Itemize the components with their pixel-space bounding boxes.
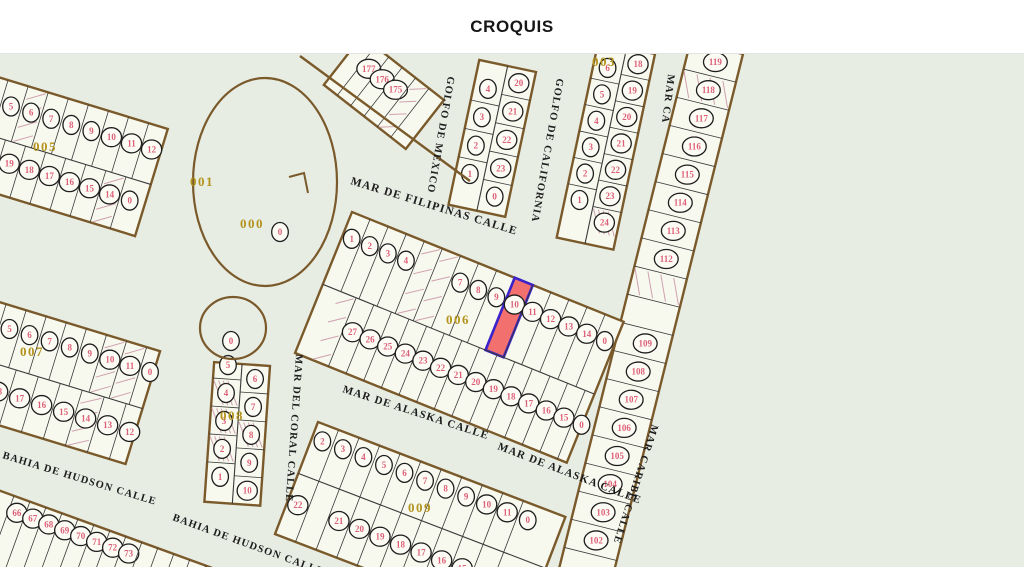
svg-text:21: 21 (508, 107, 518, 117)
lot-number: 73 (119, 544, 139, 563)
lot-number: 8 (437, 479, 454, 498)
lot-number: 18 (19, 160, 39, 179)
svg-text:9: 9 (464, 492, 469, 502)
block-label: 000 (240, 216, 264, 231)
lot-number: 109 (633, 334, 657, 353)
svg-text:9: 9 (89, 126, 94, 136)
lot-number: 103 (591, 503, 615, 522)
svg-text:11: 11 (528, 307, 537, 317)
svg-text:67: 67 (28, 514, 38, 524)
svg-text:15: 15 (559, 413, 569, 423)
lot-number: 5 (3, 97, 20, 116)
svg-text:113: 113 (667, 226, 681, 236)
lot-number: 6 (21, 326, 38, 345)
lot-number: 9 (241, 453, 258, 472)
svg-text:5: 5 (9, 102, 14, 112)
croquis-map: 5678910111220191817161514056789101101918… (0, 54, 1024, 567)
svg-text:108: 108 (631, 367, 645, 377)
svg-text:12: 12 (147, 144, 157, 154)
svg-text:18: 18 (25, 165, 35, 175)
svg-text:8: 8 (249, 430, 254, 440)
svg-text:73: 73 (124, 549, 134, 559)
lot-number: 19 (370, 527, 390, 546)
svg-text:2: 2 (583, 169, 588, 179)
svg-text:24: 24 (600, 218, 610, 228)
svg-text:1: 1 (577, 195, 582, 205)
svg-text:18: 18 (634, 59, 644, 69)
lot-number: 4 (355, 448, 372, 467)
lot-number: 10 (237, 481, 257, 500)
lot-number: 108 (626, 362, 650, 381)
lot-number: 115 (675, 165, 699, 184)
lot-number: 20 (509, 74, 529, 93)
lot-number: 17 (10, 389, 30, 408)
svg-text:0: 0 (229, 336, 234, 346)
svg-text:8: 8 (476, 285, 481, 295)
svg-text:14: 14 (105, 189, 115, 199)
lot-number: 15 (554, 408, 574, 427)
svg-text:107: 107 (624, 395, 638, 405)
block-008: 67891054321 (204, 354, 270, 506)
svg-text:8: 8 (67, 342, 72, 352)
lot-number: 2 (577, 164, 594, 183)
svg-text:18: 18 (396, 540, 406, 550)
svg-text:112: 112 (660, 254, 674, 264)
svg-text:175: 175 (389, 85, 403, 95)
svg-text:0: 0 (579, 420, 584, 430)
lot-number: 21 (329, 511, 349, 530)
svg-text:3: 3 (341, 444, 346, 454)
lot-number: 2 (361, 237, 378, 256)
svg-text:114: 114 (674, 198, 688, 208)
lot-number: 4 (588, 111, 605, 130)
block-label: 007 (20, 344, 44, 359)
lot-number: 23 (491, 159, 511, 178)
lot-number: 7 (245, 397, 262, 416)
svg-text:22: 22 (502, 135, 512, 145)
block-golfo-block: 2021222304321 (448, 60, 536, 217)
lot-number: 12 (120, 422, 140, 441)
svg-text:19: 19 (5, 159, 15, 169)
lot-number: 5 (376, 455, 393, 474)
map-detail-line (289, 173, 308, 193)
lot-number: 17 (411, 543, 431, 562)
lot-number: 6 (247, 369, 264, 388)
svg-text:6: 6 (29, 108, 34, 118)
svg-text:6: 6 (27, 330, 32, 340)
svg-text:20: 20 (514, 78, 524, 88)
svg-text:117: 117 (695, 113, 709, 123)
svg-text:2: 2 (320, 436, 325, 446)
lot-number: 20 (617, 108, 637, 127)
lot-number: 106 (612, 418, 636, 437)
lot-number: 107 (619, 390, 643, 409)
svg-text:3: 3 (386, 248, 391, 258)
svg-text:118: 118 (702, 85, 716, 95)
svg-text:2: 2 (474, 141, 479, 151)
lot-number: 17 (39, 166, 59, 185)
svg-text:17: 17 (45, 171, 55, 181)
lot-number: 1 (571, 190, 588, 209)
svg-text:7: 7 (47, 336, 52, 346)
lot-number: 0 (142, 362, 159, 381)
block-007: 56789101101918171615141312 (0, 298, 167, 466)
svg-text:109: 109 (638, 338, 652, 348)
svg-text:6: 6 (402, 468, 407, 478)
cadastral-map-canvas: 5678910111220191817161514056789101101918… (0, 54, 1024, 567)
lot-number: 4 (218, 383, 235, 402)
block-003: 18192021222324654321 (557, 54, 655, 250)
lot-number: 19 (0, 154, 19, 173)
svg-text:22: 22 (293, 500, 303, 510)
lot-number: 21 (611, 134, 631, 153)
lot-number: 9 (83, 122, 100, 141)
lot-number: 118 (696, 81, 720, 100)
lot-number: 2 (214, 439, 231, 458)
svg-text:23: 23 (605, 191, 615, 201)
lot-number: 22 (497, 130, 517, 149)
roundabout-outline (193, 78, 337, 286)
svg-text:4: 4 (404, 256, 409, 266)
svg-text:19: 19 (628, 86, 638, 96)
svg-text:13: 13 (564, 321, 574, 331)
page-title: CROQUIS (470, 17, 554, 37)
lot-number: 6 (396, 463, 413, 482)
lot-number: 4 (480, 79, 497, 98)
lot-number: 15 (79, 179, 99, 198)
svg-text:66: 66 (12, 508, 22, 518)
svg-text:17: 17 (524, 398, 534, 408)
lot-number: 11 (121, 134, 141, 153)
svg-text:5: 5 (7, 324, 12, 334)
lot-number: 6 (23, 103, 40, 122)
street-label: GOLFO DE CALIFORNIA (529, 77, 565, 223)
lot-number: 1 (212, 467, 229, 486)
svg-text:4: 4 (594, 116, 599, 126)
svg-text:5: 5 (600, 89, 605, 99)
lot-number: 12 (540, 310, 560, 329)
svg-text:10: 10 (105, 355, 115, 365)
svg-text:9: 9 (247, 458, 252, 468)
svg-text:12: 12 (546, 314, 556, 324)
lot-number: 13 (98, 416, 118, 435)
svg-text:15: 15 (85, 183, 95, 193)
svg-text:21: 21 (617, 138, 627, 148)
lot-number: 11 (522, 302, 542, 321)
svg-text:70: 70 (76, 531, 86, 541)
svg-text:26: 26 (366, 334, 376, 344)
lot-number: 7 (417, 471, 434, 490)
svg-text:2: 2 (220, 444, 225, 454)
lot-number: 14 (100, 185, 120, 204)
lot-number: 14 (76, 409, 96, 428)
lot-number: 10 (477, 495, 497, 514)
lot-number: 19 (622, 81, 642, 100)
svg-text:3: 3 (480, 112, 485, 122)
lot-number: 8 (63, 115, 80, 134)
svg-text:103: 103 (596, 507, 610, 517)
block-label: 008 (220, 408, 244, 423)
svg-text:8: 8 (69, 120, 74, 130)
svg-text:24: 24 (401, 349, 411, 359)
svg-text:11: 11 (126, 361, 135, 371)
lot-number: 3 (474, 108, 491, 127)
lot-number: 3 (380, 244, 397, 263)
svg-text:11: 11 (127, 138, 136, 148)
svg-text:21: 21 (454, 370, 464, 380)
svg-text:115: 115 (681, 170, 695, 180)
lot-number: 116 (682, 137, 706, 156)
svg-text:4: 4 (361, 452, 366, 462)
svg-text:6: 6 (253, 374, 258, 384)
svg-text:20: 20 (622, 112, 632, 122)
svg-text:19: 19 (489, 384, 499, 394)
svg-text:106: 106 (617, 423, 631, 433)
svg-text:17: 17 (417, 548, 427, 558)
svg-text:27: 27 (348, 327, 358, 337)
lot-number: 8 (470, 280, 487, 299)
svg-text:21: 21 (334, 516, 344, 526)
svg-text:8: 8 (443, 484, 448, 494)
svg-text:71: 71 (92, 537, 102, 547)
svg-text:13: 13 (103, 420, 113, 430)
svg-text:1: 1 (468, 169, 473, 179)
svg-text:0: 0 (525, 515, 530, 525)
lot-number: 9 (81, 344, 98, 363)
lot-number: 10 (101, 128, 121, 147)
lot-number: 11 (497, 503, 517, 522)
svg-text:20: 20 (471, 377, 481, 387)
svg-text:17: 17 (15, 393, 25, 403)
svg-text:5: 5 (226, 360, 231, 370)
svg-text:3: 3 (588, 142, 593, 152)
svg-text:1: 1 (349, 234, 354, 244)
svg-text:23: 23 (418, 356, 428, 366)
lot-number: 9 (488, 288, 505, 307)
svg-text:15: 15 (458, 563, 468, 567)
lot-number: 117 (689, 109, 713, 128)
lot-number: 21 (503, 102, 523, 121)
svg-text:105: 105 (610, 451, 624, 461)
lot-number: 10 (100, 350, 120, 369)
lot-number: 11 (120, 356, 140, 375)
lot-number: 9 (458, 487, 475, 506)
svg-text:1: 1 (218, 472, 223, 482)
block-label: 009 (408, 500, 432, 515)
svg-text:69: 69 (60, 525, 70, 535)
lot-number: 15 (54, 402, 74, 421)
lot-number: 10 (504, 295, 524, 314)
svg-text:16: 16 (437, 555, 447, 565)
lot-number: 8 (61, 338, 78, 357)
svg-text:14: 14 (582, 329, 592, 339)
svg-text:72: 72 (108, 543, 118, 553)
svg-text:4: 4 (224, 388, 229, 398)
block-label: 005 (33, 139, 57, 154)
svg-text:16: 16 (65, 177, 75, 187)
svg-text:102: 102 (589, 535, 603, 545)
lot-number: 16 (432, 551, 452, 567)
svg-text:23: 23 (496, 163, 506, 173)
svg-text:0: 0 (127, 196, 132, 206)
svg-text:25: 25 (383, 341, 393, 351)
lot-number: 23 (600, 187, 620, 206)
svg-text:7: 7 (458, 278, 463, 288)
lot-number: 7 (452, 273, 469, 292)
lot-number: 14 (577, 324, 597, 343)
svg-text:9: 9 (494, 292, 499, 302)
lot-number: 0 (272, 223, 289, 242)
lot-number: 0 (486, 187, 503, 206)
block-label: 003 (592, 54, 616, 69)
lot-number: 12 (141, 140, 161, 159)
svg-text:7: 7 (49, 114, 54, 124)
svg-text:19: 19 (375, 532, 385, 542)
lot-number: 18 (628, 55, 648, 74)
lot-number: 175 (384, 80, 408, 99)
lot-number: 1 (343, 229, 360, 248)
svg-text:10: 10 (107, 132, 117, 142)
lot-number: 5 (594, 85, 611, 104)
svg-text:68: 68 (44, 519, 54, 529)
lot-number: 105 (605, 447, 629, 466)
svg-text:10: 10 (243, 486, 253, 496)
svg-text:20: 20 (355, 524, 365, 534)
svg-text:5: 5 (382, 460, 387, 470)
lot-number: 18 (390, 535, 410, 554)
svg-text:7: 7 (251, 402, 256, 412)
lot-number: 22 (605, 160, 625, 179)
lot-number: 2 (468, 136, 485, 155)
lot-number: 0 (223, 332, 240, 351)
svg-text:14: 14 (81, 413, 91, 423)
svg-text:116: 116 (688, 141, 702, 151)
svg-text:4: 4 (486, 84, 491, 94)
svg-text:2: 2 (368, 241, 373, 251)
lot-number: 0 (519, 511, 536, 530)
lot-number: 114 (668, 193, 692, 212)
lot-number: 8 (243, 425, 260, 444)
svg-text:22: 22 (611, 165, 621, 175)
lot-number: 119 (703, 54, 727, 72)
svg-text:0: 0 (603, 336, 608, 346)
lot-number: 20 (349, 519, 369, 538)
lot-number: 5 (1, 320, 18, 339)
lot-number: 0 (573, 415, 590, 434)
svg-text:119: 119 (709, 57, 723, 67)
block-005: 56789101112201918171615140 (0, 74, 171, 237)
svg-text:18: 18 (507, 391, 516, 401)
svg-text:10: 10 (510, 300, 520, 310)
header: CROQUIS (0, 0, 1024, 54)
svg-text:7: 7 (423, 476, 428, 486)
lot-number: 24 (594, 213, 614, 232)
svg-text:10: 10 (482, 499, 492, 509)
block-label: 006 (446, 312, 470, 327)
svg-text:9: 9 (88, 349, 93, 359)
svg-text:22: 22 (436, 363, 446, 373)
svg-text:0: 0 (492, 192, 497, 202)
block-label: 001 (190, 174, 214, 189)
svg-text:15: 15 (59, 407, 69, 417)
svg-text:11: 11 (503, 507, 512, 517)
block-175: 177176175 (324, 54, 444, 149)
lot-number: 3 (582, 138, 599, 157)
lot-number: 3 (335, 440, 352, 459)
lot-number: 7 (43, 109, 60, 128)
svg-text:0: 0 (148, 367, 153, 377)
svg-text:16: 16 (542, 406, 552, 416)
lot-number: 112 (654, 250, 678, 269)
lot-number: 0 (121, 191, 138, 210)
lot-number: 2 (314, 432, 331, 451)
svg-text:0: 0 (278, 227, 283, 237)
svg-text:16: 16 (37, 400, 47, 410)
lot-number: 16 (59, 173, 79, 192)
svg-text:12: 12 (125, 427, 135, 437)
lot-number: 16 (32, 396, 52, 415)
lot-number: 13 (559, 317, 579, 336)
lot-number: 4 (398, 251, 415, 270)
lot-number: 0 (597, 332, 614, 351)
lot-number: 113 (661, 221, 685, 240)
lot-number: 102 (584, 531, 608, 550)
